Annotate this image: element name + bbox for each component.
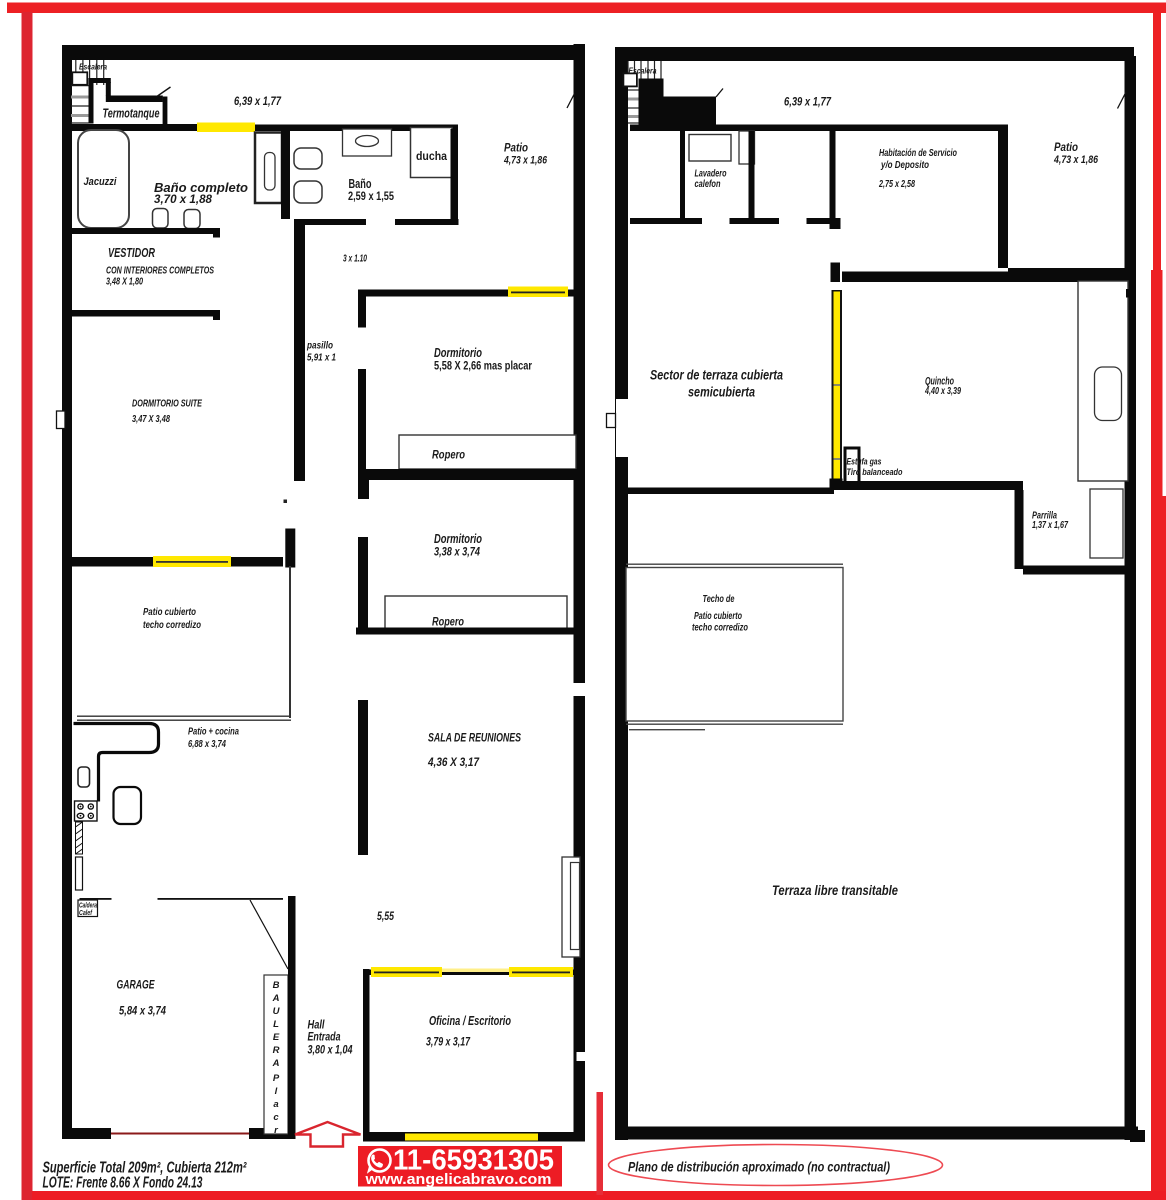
svg-text:Estufa gas: Estufa gas [847,457,882,468]
svg-text:5,84 x 3,74: 5,84 x 3,74 [119,1006,166,1018]
svg-text:DORMITORIO SUITE: DORMITORIO SUITE [132,398,203,410]
svg-text:www.angelicabravo.com: www.angelicabravo.com [364,1172,551,1188]
svg-text:3 x 1.10: 3 x 1.10 [343,254,367,265]
svg-text:pasillo: pasillo [306,341,333,352]
svg-text:P: P [273,1073,280,1084]
svg-text:A: A [272,1058,280,1069]
svg-text:Patio cubierto: Patio cubierto [143,606,196,618]
svg-text:GARAGE: GARAGE [117,980,155,992]
svg-text:Patio cubierto: Patio cubierto [694,610,742,622]
svg-text:6,88 x 3,74: 6,88 x 3,74 [188,738,226,750]
svg-text:6,39 x 1,77: 6,39 x 1,77 [784,95,832,109]
svg-text:3,38 x 3,74: 3,38 x 3,74 [434,545,480,559]
svg-text:c: c [273,1112,279,1123]
svg-text:SALA DE REUNIONES: SALA DE REUNIONES [428,731,521,745]
svg-text:techo corredizo: techo corredizo [692,622,748,634]
svg-text:Jacuzzi: Jacuzzi [84,176,118,188]
svg-text:Termotanque: Termotanque [103,107,160,121]
svg-text:Hall: Hall [308,1020,326,1032]
svg-text:Plano de distribución aproxima: Plano de distribución aproximado (no con… [628,1159,890,1175]
svg-text:calefon: calefon [695,179,721,190]
svg-text:4,40 x 3,39: 4,40 x 3,39 [924,385,961,397]
svg-text:U: U [273,1006,281,1017]
svg-text:semicubierta: semicubierta [688,384,755,400]
svg-text:Ropero: Ropero [432,615,464,629]
svg-text:3,80 x 1,04: 3,80 x 1,04 [308,1045,353,1057]
svg-text:5,58 X 2,66 mas placar: 5,58 X 2,66 mas placar [434,359,532,373]
svg-text:Calef: Calef [79,908,93,917]
svg-text:A: A [272,993,280,1004]
svg-text:4,36 X 3,17: 4,36 X 3,17 [427,755,480,769]
svg-text:Patio + cocina: Patio + cocina [188,726,239,738]
svg-text:6,39 x 1,77: 6,39 x 1,77 [234,94,282,108]
svg-text:R: R [273,1045,280,1056]
svg-text:Sector de terraza cubierta: Sector de terraza cubierta [650,367,783,383]
svg-text:1,37 x 1,67: 1,37 x 1,67 [1032,520,1068,531]
svg-text:L: L [273,1019,279,1030]
svg-text:3,79 x 3,17: 3,79 x 3,17 [426,1035,471,1049]
svg-text:Patio: Patio [504,143,528,155]
svg-text:VESTIDOR: VESTIDOR [108,246,155,260]
svg-text:5,91 x 1: 5,91 x 1 [307,353,336,364]
svg-text:3,47 X 3,48: 3,47 X 3,48 [132,413,170,425]
svg-text:Terraza libre transitable: Terraza libre transitable [772,882,898,898]
svg-text:l: l [275,1086,278,1097]
svg-text:Ropero: Ropero [432,448,465,462]
svg-text:3,70 x 1,88: 3,70 x 1,88 [154,192,212,206]
svg-text:LOTE: Frente 8.66 X Fondo 24.1: LOTE: Frente 8.66 X Fondo 24.13 [43,1175,203,1192]
svg-text:2,59 x 1,55: 2,59 x 1,55 [348,189,394,203]
svg-text:E: E [273,1032,280,1043]
svg-text:2,75 x 2,58: 2,75 x 2,58 [878,179,915,190]
svg-text:ducha: ducha [416,149,447,163]
svg-text:4,73 x 1,86: 4,73 x 1,86 [1053,154,1098,166]
svg-text:Entrada: Entrada [308,1032,341,1044]
svg-text:Tiro balanceado: Tiro balanceado [847,467,903,478]
svg-text:Techo de: Techo de [703,593,735,605]
svg-text:B: B [273,980,280,991]
svg-text:3,48 X 1,80: 3,48 X 1,80 [106,276,143,288]
svg-text:Habitación de Servicio: Habitación de Servicio [879,148,957,159]
svg-text:Patio: Patio [1054,142,1078,154]
svg-text:techo corredizo: techo corredizo [143,619,201,631]
svg-text:Lavadero: Lavadero [695,169,727,180]
svg-text:Escalera: Escalera [79,62,107,72]
svg-text:y/o Deposito: y/o Deposito [880,160,929,171]
svg-text:Oficina / Escritorio: Oficina / Escritorio [429,1014,511,1028]
svg-text:4,73 x 1,86: 4,73 x 1,86 [503,155,547,167]
svg-text:Escalera: Escalera [629,66,657,76]
svg-text:5,55: 5,55 [377,911,394,923]
svg-text:a: a [273,1099,278,1110]
